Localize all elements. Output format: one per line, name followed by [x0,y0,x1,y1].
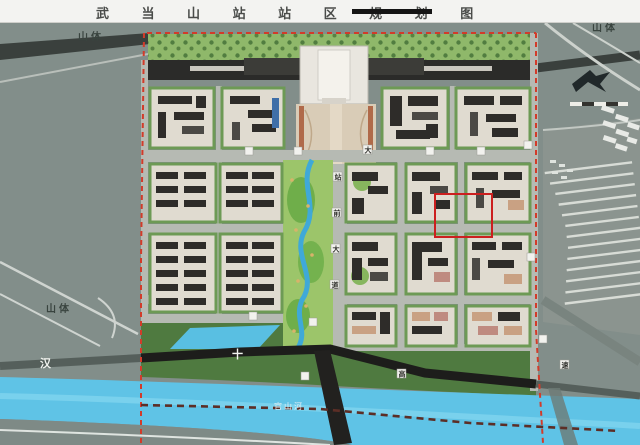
svg-text:站: 站 [335,173,342,182]
planning-map-photo: 山体 山体 山体 汉 十 高 速 官山河 站 前 大 道 大 [0,0,640,445]
svg-text:高: 高 [399,370,406,379]
station-building [300,46,368,106]
svg-text:前: 前 [334,209,341,218]
blocks-center-east [346,164,530,346]
block-row1-c [382,88,448,148]
label-road-da: 大 [363,145,372,155]
label-mountain-left: 山体 [46,302,72,315]
block-row1-b [222,88,284,148]
title-bar: 武 当 山 站 站 区 规 划 图 [0,0,640,23]
scale-bar [570,102,628,106]
svg-text:大: 大 [365,146,372,155]
label-expressway-han: 汉 [40,356,52,370]
block-row1-a [150,88,214,148]
label-expressway-su: 速 [560,360,569,370]
map-canvas: 山体 山体 山体 汉 十 高 速 官山河 站 前 大 道 大 [0,0,640,445]
svg-text:道: 道 [332,281,339,290]
block-row1-d [456,88,530,148]
label-river-name: 官山河 [274,401,304,411]
central-park [283,160,333,350]
block-row3-left [150,234,282,312]
svg-text:大: 大 [333,245,340,254]
svg-text:速: 速 [562,361,569,370]
label-expressway-gao: 高 [397,369,406,379]
label-mountain-top-left: 山体 [78,30,104,43]
label-expressway-shi: 十 [232,347,243,361]
block-row2-left [150,164,282,222]
title-divider-bar [352,9,432,14]
